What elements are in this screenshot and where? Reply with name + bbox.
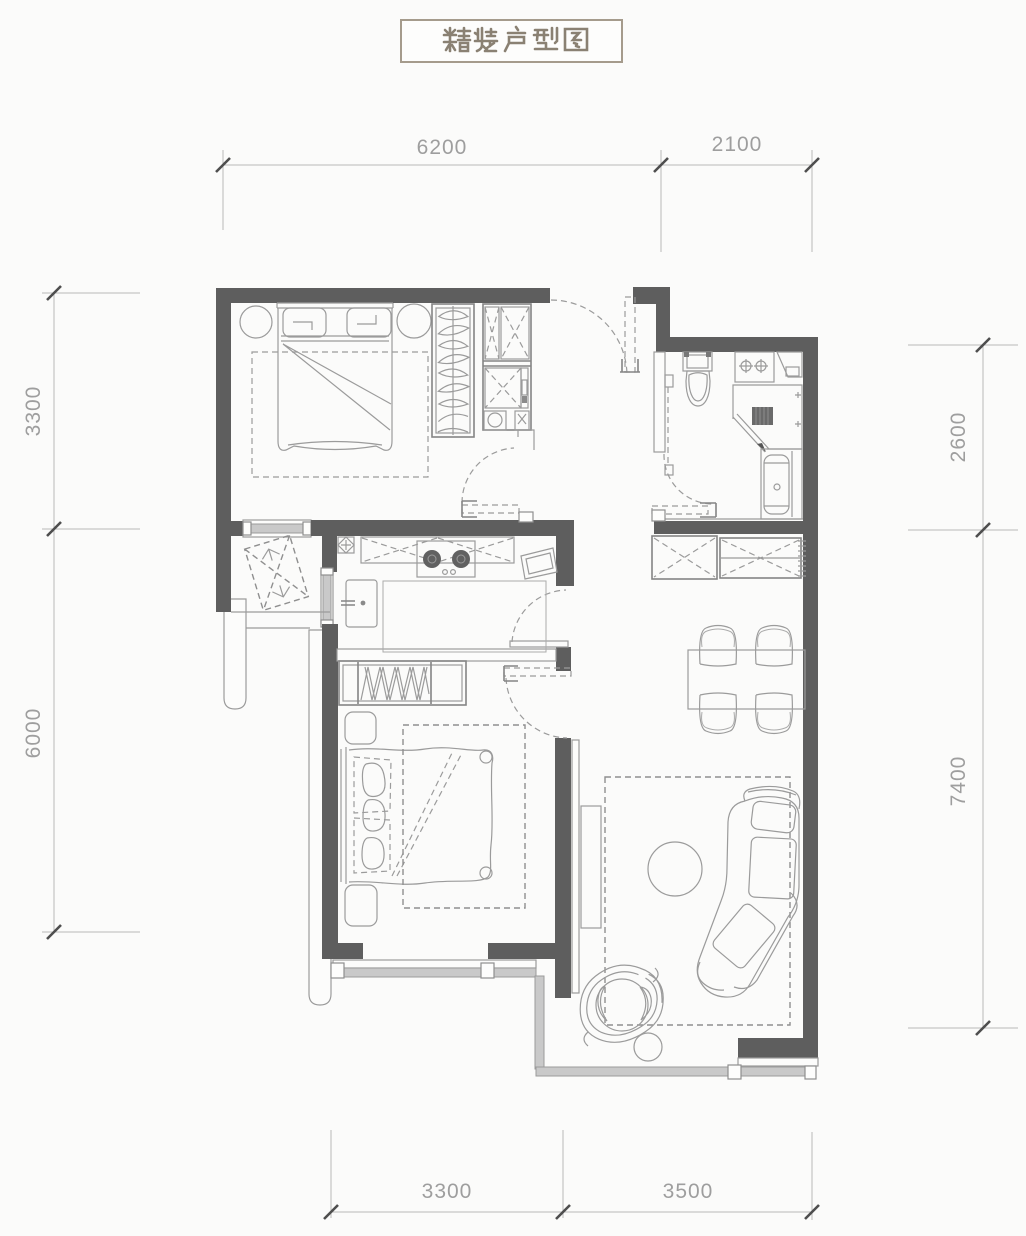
svg-text:6200: 6200: [417, 136, 468, 159]
svg-text:6000: 6000: [22, 708, 45, 759]
svg-text:2100: 2100: [712, 133, 763, 156]
svg-text:7400: 7400: [947, 756, 970, 807]
svg-text:3500: 3500: [663, 1180, 714, 1203]
svg-text:2600: 2600: [947, 412, 970, 463]
svg-text:3300: 3300: [422, 1180, 473, 1203]
svg-text:3300: 3300: [22, 386, 45, 437]
